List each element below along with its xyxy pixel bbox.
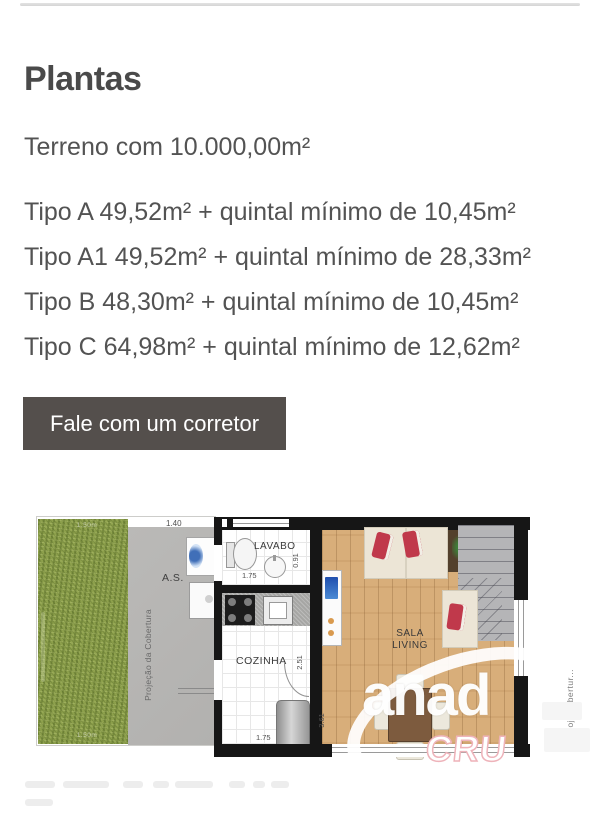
wall-kitchen-living [310, 530, 322, 744]
cozinha-room-label: COZINHA [236, 655, 287, 667]
dimension-label: 1.75 [242, 571, 257, 580]
lavabo-room-label: LAVABO [254, 541, 296, 552]
dimension-label: 1.40 [166, 519, 182, 528]
window-top [233, 519, 289, 527]
watermark-sub-text: CRU [424, 728, 509, 770]
grass-dim-bottom: 1.50m [47, 732, 127, 739]
washing-machine-icon [186, 537, 216, 576]
watermark-text: anad [362, 662, 489, 729]
page: Plantas Terreno com 10.000,00m² Tipo A 4… [0, 0, 600, 800]
sala-living-room-label: SALA LIVING [372, 628, 448, 652]
top-divider [20, 3, 580, 6]
tipo-item-a: Tipo A 49,52m² + quintal mínimo de 10,45… [24, 190, 531, 235]
tipo-item-a1: Tipo A1 49,52m² + quintal mínimo de 28,3… [24, 235, 531, 280]
dimension-label: 3.61 [317, 713, 326, 728]
talk-to-broker-button[interactable]: Fale com um corretor [23, 397, 286, 450]
floorplan-image: 1.50m 1.50m 1.40 A.S. Projeção da Cobert… [36, 516, 582, 757]
door-opening [214, 660, 222, 700]
grass-dim-top: 1.50m [47, 522, 127, 529]
door-opening [214, 545, 222, 581]
tipo-item-c: Tipo C 64,98m² + quintal mínimo de 12,62… [24, 325, 531, 370]
dimension-label: 0.91 [291, 553, 300, 568]
tv-icon [325, 577, 338, 599]
faint-artifact [544, 728, 590, 752]
washer-door-icon [189, 544, 203, 568]
sink-icon [264, 556, 286, 578]
kitchen-sink-icon [263, 596, 293, 625]
decor-icon [328, 630, 334, 636]
pillow-icon [446, 603, 466, 631]
as-room-label: A.S. [162, 572, 184, 584]
ghost-text-row [25, 775, 325, 783]
clothesline-icon [178, 688, 214, 694]
dimension-label: 1.75 [256, 733, 271, 742]
grass-left-annotation [41, 612, 45, 682]
tipo-list: Tipo A 49,52m² + quintal mínimo de 10,45… [24, 190, 531, 370]
projecao-cobertura-label: Projeção da Cobertura [143, 580, 153, 730]
terreno-text: Terreno com 10.000,00m² [24, 133, 310, 162]
wall-lavabo [222, 585, 310, 593]
decor-icon [328, 618, 334, 624]
tipo-item-b: Tipo B 48,30m² + quintal mínimo de 10,45… [24, 280, 531, 325]
stove-icon [225, 595, 255, 625]
grass-area [38, 519, 128, 744]
page-title: Plantas [24, 60, 141, 99]
faint-artifact [542, 702, 582, 720]
fridge-icon [276, 700, 310, 750]
